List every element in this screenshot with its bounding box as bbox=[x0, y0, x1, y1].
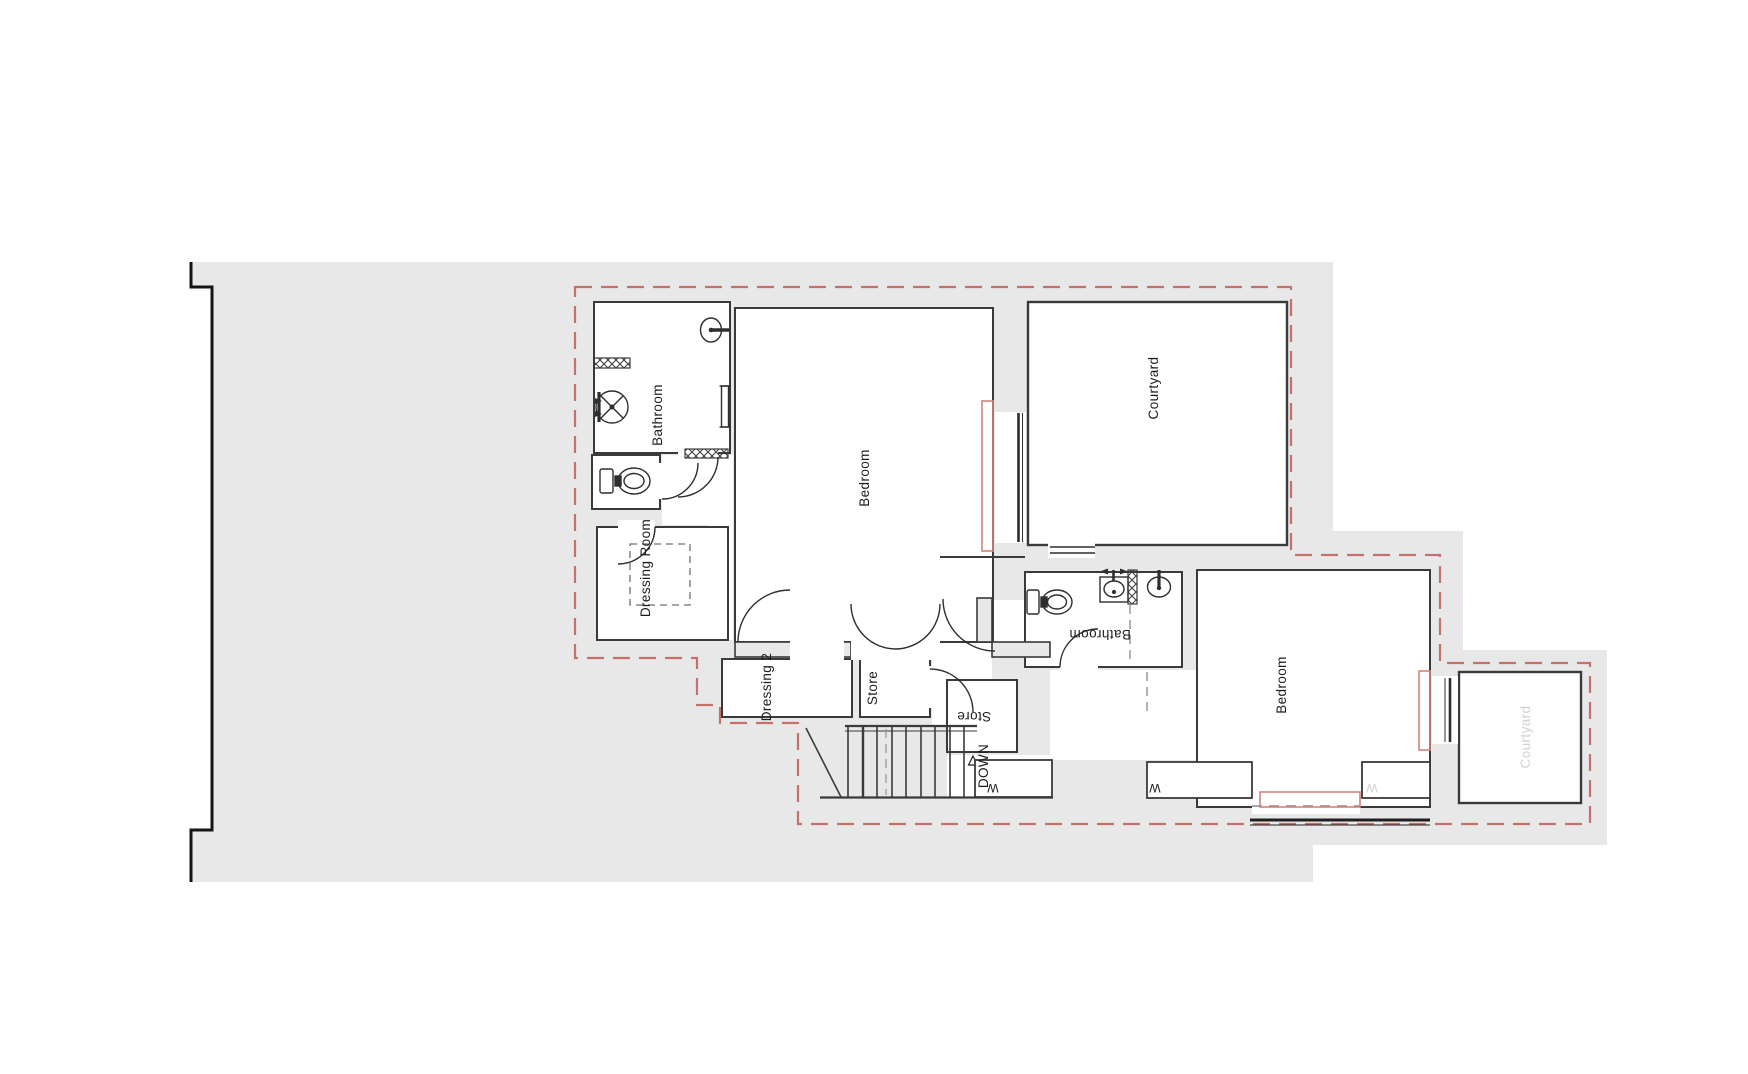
label-wardrobe-right: W bbox=[1366, 781, 1378, 795]
door-gap-east-corridor bbox=[993, 600, 1027, 642]
wardrobes bbox=[975, 760, 1430, 798]
label-bathroom-2: Bathroom bbox=[1069, 627, 1131, 642]
label-bedroom-1: Bedroom bbox=[857, 449, 872, 507]
label-dressing-room: Dressing Room bbox=[638, 519, 653, 617]
label-courtyard-1: Courtyard bbox=[1146, 357, 1161, 420]
opening-store1 bbox=[924, 666, 936, 708]
wall-bedroom1-south-east bbox=[992, 642, 1050, 657]
corridor-east bbox=[1050, 670, 1197, 760]
room-courtyard-1 bbox=[1028, 302, 1287, 545]
floor-plan-page: Bathroom Bedroom Courtyard Dressing Room… bbox=[0, 0, 1748, 1074]
label-bedroom-2: Bedroom bbox=[1274, 656, 1289, 714]
existing-wall-outline bbox=[191, 262, 212, 882]
label-wardrobe-hall: W bbox=[987, 781, 999, 795]
floor-plan-canvas: Bathroom Bedroom Courtyard Dressing Room… bbox=[0, 0, 1748, 1074]
label-store-2: Store bbox=[957, 709, 991, 724]
opening-dressing2-passage bbox=[790, 638, 844, 662]
room-dressing-room bbox=[597, 527, 728, 640]
room-dressing-2 bbox=[722, 659, 852, 717]
label-courtyard-2: Courtyard bbox=[1518, 706, 1533, 769]
wardrobe-left-box bbox=[1147, 762, 1252, 798]
label-dressing-2: Dressing 2 bbox=[759, 653, 774, 722]
label-bathroom-1: Bathroom bbox=[650, 384, 665, 446]
opening-wc bbox=[654, 463, 668, 499]
label-wardrobe-left: W bbox=[1149, 781, 1161, 795]
opening-bathroom2 bbox=[1060, 660, 1098, 672]
label-store-1: Store bbox=[865, 671, 880, 705]
wall-stub-vestibule bbox=[977, 598, 992, 642]
